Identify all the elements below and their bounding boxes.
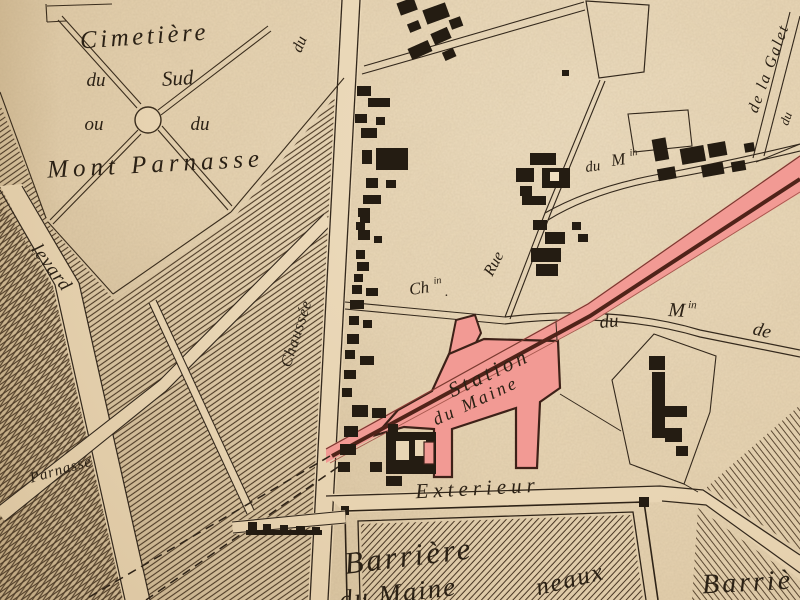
svg-text:Barriè: Barriè — [701, 565, 794, 600]
svg-text:du: du — [584, 158, 601, 176]
svg-text:.: . — [445, 285, 449, 300]
svg-text:du: du — [87, 70, 106, 91]
svg-text:in: in — [433, 275, 442, 287]
svg-text:in: in — [629, 147, 638, 159]
svg-text:M: M — [667, 299, 687, 322]
svg-text:in: in — [688, 299, 698, 311]
svg-text:ou: ou — [85, 114, 104, 135]
svg-text:Sud: Sud — [161, 65, 194, 91]
svg-text:du: du — [599, 310, 620, 333]
svg-text:Ch: Ch — [408, 277, 430, 299]
svg-text:du: du — [191, 114, 210, 135]
